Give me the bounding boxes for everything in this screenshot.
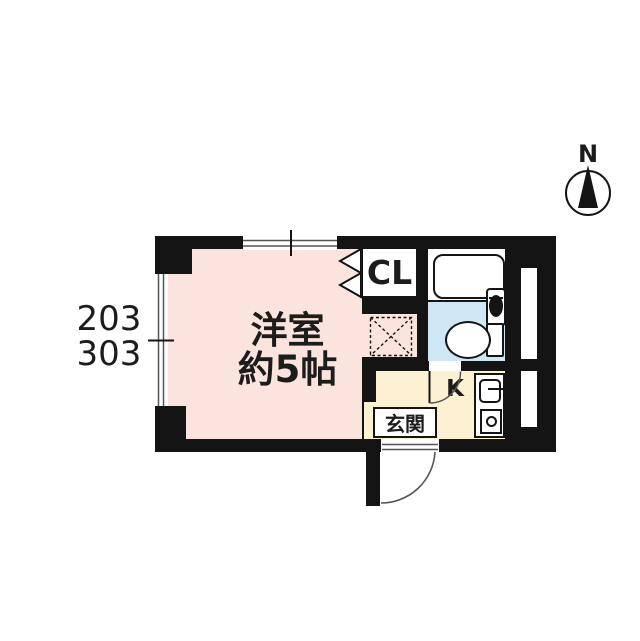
stove-burner-ring-icon [486, 416, 497, 427]
right-wall-slit-lower [521, 371, 537, 427]
entrance-label: 玄関 [385, 408, 425, 437]
entrance-wall-stub [366, 452, 380, 506]
corner-block-top-left [155, 236, 192, 274]
corner-block-bottom-left [155, 406, 186, 452]
right-wall-slit-upper [521, 268, 537, 359]
toilet-bowl-icon [445, 321, 491, 359]
unit-number-203: 203 [76, 302, 142, 337]
unit-number-303: 303 [76, 337, 142, 372]
entrance-door-swing-icon [381, 445, 438, 504]
closet-box: CL [361, 247, 418, 298]
kitchen-label: K [443, 376, 467, 402]
left-window [155, 274, 168, 406]
bathroom-doorway-opening [429, 361, 461, 371]
main-room-label: 洋室 約5帖 [185, 311, 390, 389]
unit-numbers: 203 303 [76, 302, 142, 374]
entrance-box: 玄関 [373, 407, 437, 438]
main-room-size: 約5帖 [185, 350, 390, 389]
kitchen-sink-icon [479, 379, 501, 403]
entrance-doorway-opening [381, 439, 439, 452]
bath-faucet-panel [486, 288, 506, 326]
main-room-name: 洋室 [185, 311, 390, 350]
top-window [243, 236, 337, 250]
closet-label: CL [367, 253, 412, 292]
floor-plan-page: 203 303 N CL 玄関 洋室 約5帖 K [0, 0, 640, 641]
compass-north-label: N [572, 140, 604, 166]
compass-icon [565, 170, 611, 216]
